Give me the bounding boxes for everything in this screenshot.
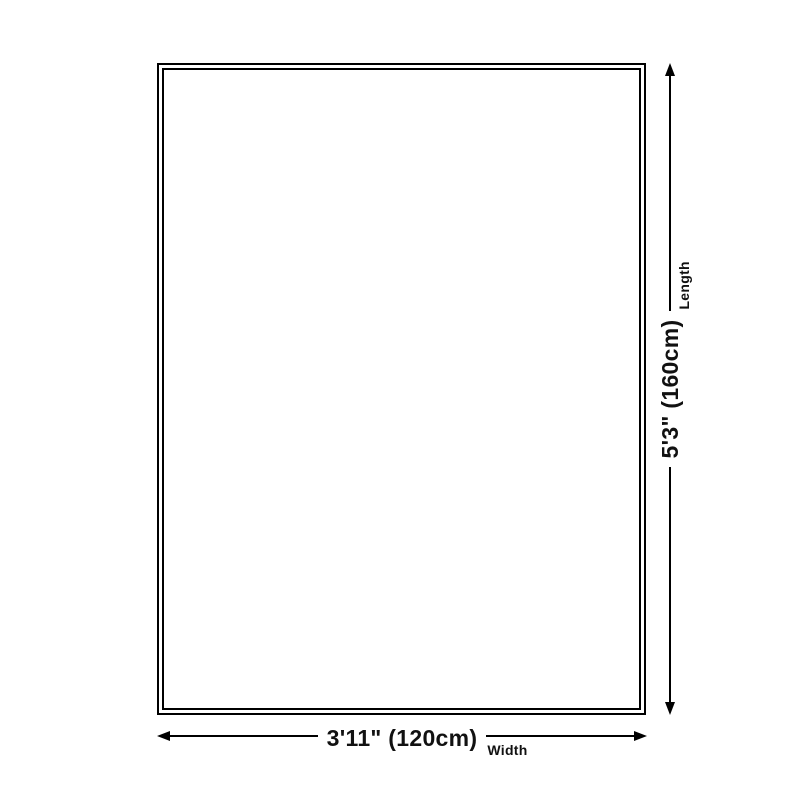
item-outline-outer [157,63,646,715]
length-value-label: 5'3" (160cm) [657,311,684,468]
width-dimension-line [170,735,318,737]
length-dimension-line [669,76,671,311]
size-diagram: 3'11" (120cm) Width 5'3" (160cm) Length [0,0,800,800]
width-axis-label: Width [487,742,527,758]
width-value-label: 3'11" (120cm) [318,725,487,752]
length-dimension-line [669,467,671,702]
arrow-left-icon [157,731,170,741]
arrow-down-icon [665,702,675,715]
width-dimension-line [486,735,634,737]
arrow-up-icon [665,63,675,76]
item-outline-inner [162,68,641,710]
arrow-right-icon [634,731,647,741]
length-axis-label: Length [676,261,692,309]
